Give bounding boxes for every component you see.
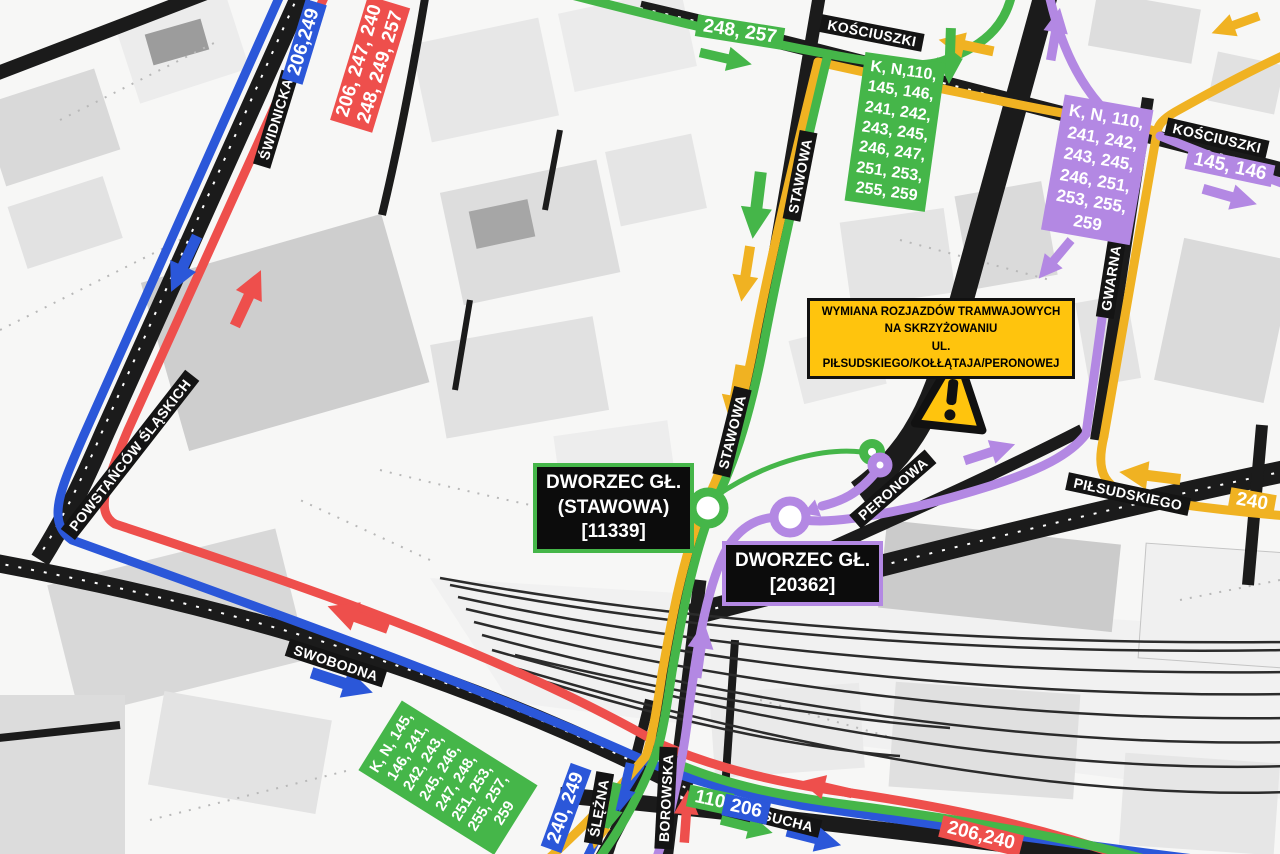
stop-marker-dworzec-stawowa <box>692 492 724 524</box>
building-block <box>0 69 120 187</box>
building-block <box>1088 0 1201 64</box>
building-block <box>148 691 332 814</box>
building-block <box>840 208 956 307</box>
dotted-line <box>300 500 430 560</box>
building-block <box>8 176 123 269</box>
warning-notice-box: WYMIANA ROZJAZDÓW TRAMWAJOWYCH NA SKRZYŻ… <box>807 298 1075 379</box>
transit-detour-map: ŚWIDNICKA KOŚCIUSZKI KOŚCIUSZKI STAWOWA … <box>0 0 1280 854</box>
warning-line1: WYMIANA ROZJAZDÓW TRAMWAJOWYCH <box>814 304 1068 321</box>
green-direction-arrow-icon <box>697 40 754 76</box>
building-block <box>605 134 707 227</box>
building-block <box>411 18 559 143</box>
green-direction-arrow-icon <box>737 170 776 241</box>
stop-label-dworzec-stawowa: DWORZEC GŁ. (STAWOWA) [11339] <box>533 463 694 553</box>
building-block <box>1154 238 1280 403</box>
stop-label-dworzec-peronowa: DWORZEC GŁ. [20362] <box>722 541 883 606</box>
stop-name: DWORZEC GŁ. <box>735 549 870 574</box>
building-block <box>0 695 125 854</box>
stop-marker-dworzec-peronowa <box>774 501 806 533</box>
warning-line3: UL. PIŁSUDSKIEGO/KOŁŁĄTAJA/PERONOWEJ <box>814 339 1068 374</box>
warning-line2: NA SKRZYŻOWANIU <box>814 321 1068 338</box>
yellow-direction-arrow-icon <box>728 244 762 303</box>
stop-marker-small-purple <box>872 457 888 473</box>
stop-code: [11339] <box>546 520 681 545</box>
stop-name2: (STAWOWA) <box>546 496 681 521</box>
stop-name: DWORZEC GŁ. <box>546 471 681 496</box>
yellow-direction-arrow-icon <box>1208 5 1263 44</box>
stop-code: [20362] <box>735 574 870 599</box>
